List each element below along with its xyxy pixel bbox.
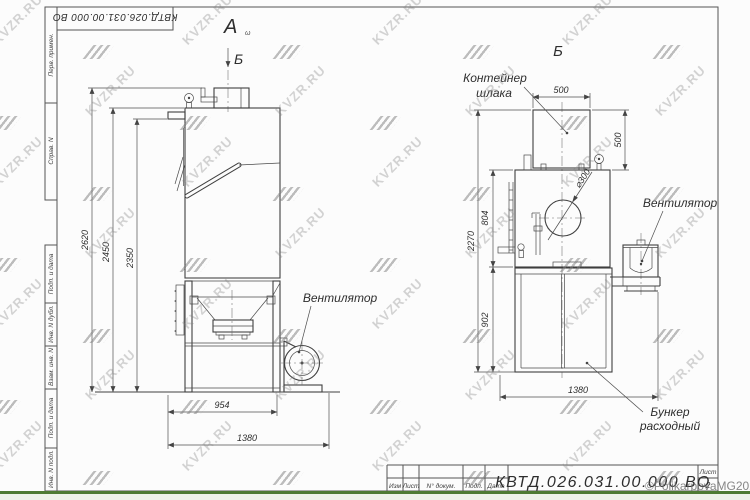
dim-1380-right-label: 1380 (568, 385, 588, 395)
bunker-label-line1: Бункер (650, 405, 689, 419)
slag-container-label-line2: шлака (476, 86, 512, 100)
dim-804-label: 804 (480, 210, 490, 225)
dim-2620-label: 2620 (80, 230, 90, 251)
margin-label-perv-primen: Перв. примен. (48, 33, 55, 76)
dim-2270-label: 2270 (466, 231, 476, 252)
margin-label-inv-dubl: Инв. N дубл. (47, 305, 55, 343)
titleblock-col-podp: Подп. (465, 482, 482, 490)
titleblock-col-izm: Изм (389, 483, 402, 490)
elbow-pipe (201, 88, 217, 102)
titleblock-col-n-dokum: N° докум. (427, 482, 456, 490)
technical-drawing: Перв. примен. Справ. N Подп. и дата Инв.… (0, 0, 750, 500)
safety-valve (185, 94, 194, 109)
left-view: А ω Б (80, 16, 377, 449)
section-b-marker-label: Б (234, 51, 243, 67)
margin-label-vzam-inv: Взам. инв. N (48, 348, 55, 386)
titleblock-sheet-label: Лист (699, 469, 717, 476)
view-a-label-sub: ω (245, 30, 251, 37)
slag-container (533, 110, 590, 170)
dim-954-label: 954 (214, 400, 229, 410)
dim-2450-label: 2450 (101, 242, 111, 263)
view-a-label: А (223, 16, 237, 38)
fan-callout-left: Вентилятор (298, 291, 378, 353)
fan-front-view (610, 240, 660, 291)
flue-duct (214, 88, 249, 108)
left-view-dimensions: 2620 2450 2350 954 1380 (80, 88, 329, 449)
fan-side-view (280, 338, 323, 392)
margin-label-podp-data-1: Подп. и дата (47, 253, 55, 294)
titleblock-col-list: Лист (402, 483, 420, 490)
view-b-title: Б (553, 43, 563, 60)
top-doc-number: КВТД.026.031.00.000 ВО (52, 11, 177, 22)
right-view: Б Контейнер шлака (463, 43, 717, 433)
dim-2350-label: 2350 (125, 248, 135, 269)
fan-label-right: Вентилятор (643, 196, 718, 210)
dim-902-label: 902 (480, 312, 490, 327)
furnace-body-front (498, 155, 610, 269)
diameter-callout: ⌀300 (548, 167, 592, 240)
feed-bunker (515, 268, 612, 372)
margin-label-sprav-n: Справ. N (48, 137, 55, 165)
margin-label-podp-data-2: Подп. и дата (47, 397, 55, 438)
furnace-body (168, 108, 280, 281)
support-frame (175, 281, 281, 392)
fan-label-left: Вентилятор (303, 291, 378, 305)
slag-container-callout: Контейнер шлака (463, 71, 568, 134)
margin-label-inv-podl: Инв. N подл. (47, 450, 55, 488)
dim-500-width-label: 500 (553, 85, 568, 95)
slag-container-label-line1: Контейнер (463, 71, 527, 85)
dim-500-height-label: 500 (613, 132, 623, 147)
bottom-strip (0, 494, 750, 500)
bunker-label-line2: расходный (639, 419, 701, 433)
drawing-sheet: Перв. примен. Справ. N Подп. и дата Инв.… (0, 0, 750, 500)
dim-1380-left-label: 1380 (237, 433, 257, 443)
sheet-frame: Перв. примен. Справ. N Подп. и дата Инв.… (45, 7, 718, 491)
